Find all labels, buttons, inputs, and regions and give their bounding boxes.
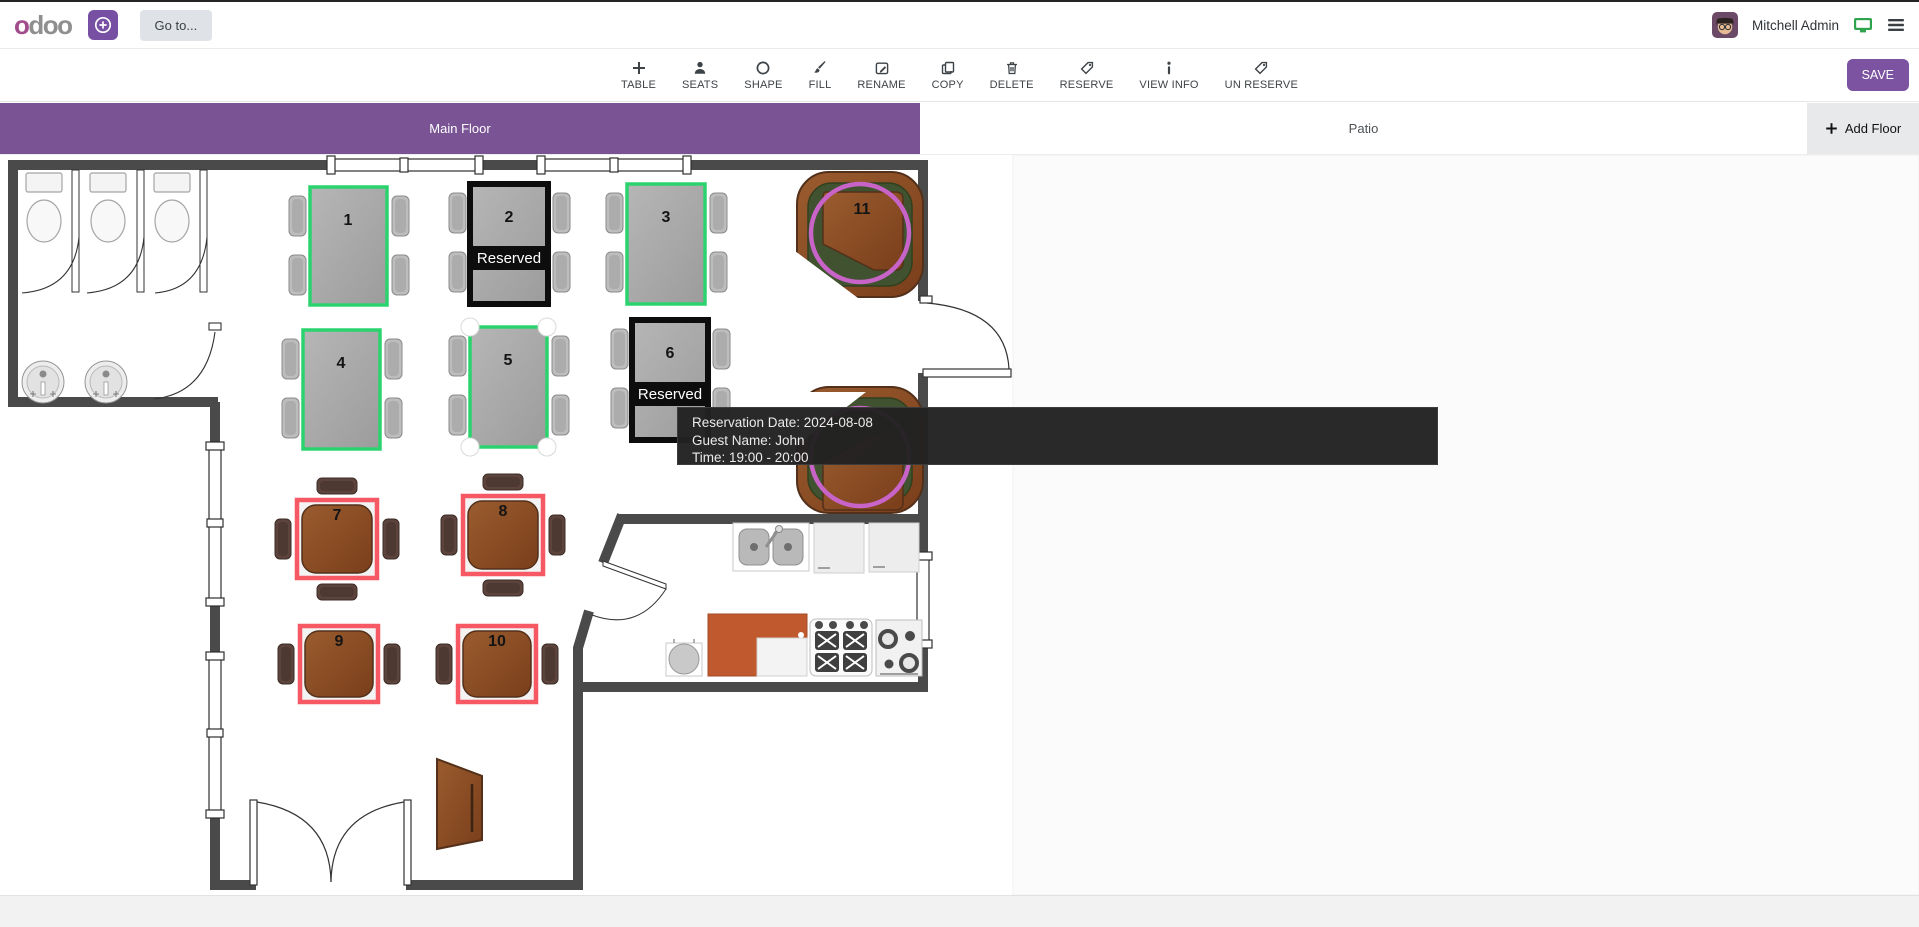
copy-button[interactable]: COPY <box>932 60 964 91</box>
chair <box>282 398 299 438</box>
table-number: 11 <box>854 201 871 218</box>
reserve-label: RESERVE <box>1060 79 1114 91</box>
chair <box>436 644 452 684</box>
chair <box>392 255 409 295</box>
hamburger-icon <box>1887 18 1905 32</box>
tag-icon <box>1253 60 1269 76</box>
table-label: TABLE <box>621 79 656 91</box>
table-number: 1 <box>344 212 353 229</box>
fill-button[interactable]: FILL <box>809 60 832 91</box>
chair <box>441 515 457 555</box>
chair <box>483 580 523 596</box>
chair <box>275 519 291 559</box>
pos-floor-editor: odoo Go to... Mitchell Admin TABLE SEATS… <box>0 0 1919 927</box>
chair <box>289 255 306 295</box>
chair <box>710 252 727 292</box>
copy-icon <box>940 60 956 76</box>
floor-plan-canvas[interactable]: 1 2 Reserved 3 4 <box>0 155 1919 895</box>
tab-main-floor-label: Main Floor <box>429 121 490 136</box>
toilets <box>26 173 190 242</box>
table-number: 10 <box>488 633 506 650</box>
chair <box>553 252 570 292</box>
customer-display-button[interactable] <box>1853 17 1873 34</box>
edit-toolbar: TABLE SEATS SHAPE FILL RENAME COPY DELET… <box>0 50 1919 102</box>
chair <box>483 474 523 490</box>
view-info-button[interactable]: VIEW INFO <box>1139 60 1198 91</box>
table-number: 5 <box>504 352 513 369</box>
kitchen-counter <box>814 523 864 573</box>
table-number: 2 <box>505 209 514 226</box>
chair <box>383 519 399 559</box>
chair <box>384 644 400 684</box>
reservation-tooltip: Reservation Date: 2024-08-08 Guest Name:… <box>677 407 1438 465</box>
electric-stove <box>876 620 922 676</box>
chair <box>282 339 299 379</box>
unreserve-label: UN RESERVE <box>1225 79 1298 91</box>
gas-stove <box>810 619 872 676</box>
apps-menu-button[interactable] <box>88 10 118 40</box>
rename-button[interactable]: RENAME <box>857 60 905 91</box>
plus-icon <box>1825 122 1838 135</box>
brush-icon <box>812 60 828 76</box>
table-number: 9 <box>335 633 344 650</box>
table-button[interactable]: TABLE <box>621 60 656 91</box>
rename-label: RENAME <box>857 79 905 91</box>
shape-label: SHAPE <box>744 79 782 91</box>
view-info-label: VIEW INFO <box>1139 79 1198 91</box>
chair <box>449 395 466 435</box>
add-floor-button[interactable]: Add Floor <box>1807 103 1919 154</box>
chair <box>278 644 294 684</box>
trash-icon <box>1004 60 1020 76</box>
table-number: 4 <box>337 355 346 372</box>
seats-label: SEATS <box>682 79 718 91</box>
avatar-image <box>1712 12 1738 38</box>
chair <box>713 329 730 369</box>
host-stand <box>437 759 482 849</box>
chair <box>392 196 409 236</box>
tooltip-date: Reservation Date: 2024-08-08 <box>692 414 1437 432</box>
table-11[interactable]: 11 <box>791 172 923 304</box>
top-navbar: odoo Go to... Mitchell Admin <box>0 2 1919 49</box>
hamburger-menu-button[interactable] <box>1887 18 1905 32</box>
table-number: 8 <box>499 503 508 520</box>
bottom-bar <box>0 895 1919 927</box>
chair <box>289 196 306 236</box>
go-to-button[interactable]: Go to... <box>140 10 213 41</box>
chair <box>449 252 466 292</box>
chair <box>449 193 466 233</box>
chair <box>552 336 569 376</box>
chair <box>449 336 466 376</box>
save-button[interactable]: SAVE <box>1847 59 1909 91</box>
chair <box>385 398 402 438</box>
delete-label: DELETE <box>990 79 1034 91</box>
table-number: 7 <box>333 507 342 524</box>
chair <box>611 329 628 369</box>
odoo-logo[interactable]: odoo <box>14 12 72 38</box>
seats-button[interactable]: SEATS <box>682 60 718 91</box>
user-name[interactable]: Mitchell Admin <box>1752 18 1839 33</box>
tooltip-guest: Guest Name: John <box>692 432 1437 450</box>
chair <box>606 193 623 233</box>
tooltip-time: Time: 19:00 - 20:00 <box>692 449 1437 467</box>
chair <box>385 339 402 379</box>
info-icon <box>1161 60 1177 76</box>
chair <box>710 193 727 233</box>
chair <box>606 252 623 292</box>
reserve-button[interactable]: RESERVE <box>1060 60 1114 91</box>
copy-label: COPY <box>932 79 964 91</box>
chair <box>553 193 570 233</box>
circle-icon <box>755 60 771 76</box>
unreserve-button[interactable]: UN RESERVE <box>1225 60 1298 91</box>
chair <box>542 644 558 684</box>
person-icon <box>692 60 708 76</box>
table-number: 6 <box>666 345 675 362</box>
add-floor-label: Add Floor <box>1845 121 1901 136</box>
reserved-label: Reserved <box>477 250 541 267</box>
shape-button[interactable]: SHAPE <box>744 60 782 91</box>
tab-patio-label: Patio <box>1349 121 1379 136</box>
tab-patio[interactable]: Patio <box>920 103 1807 154</box>
chair <box>552 395 569 435</box>
canvas-right-area <box>1013 155 1919 895</box>
fill-label: FILL <box>809 79 832 91</box>
edit-icon <box>874 60 890 76</box>
monitor-icon <box>1853 17 1873 34</box>
plus-circle-icon <box>93 15 113 35</box>
floor-tabs: Main Floor Patio Add Floor <box>0 103 1919 155</box>
chair <box>611 388 628 428</box>
table-number: 3 <box>662 209 671 226</box>
plus-icon <box>631 60 647 76</box>
reserved-label: Reserved <box>638 386 702 403</box>
tab-main-floor[interactable]: Main Floor <box>0 103 920 154</box>
kitchen-counter <box>869 523 919 572</box>
chair <box>317 478 357 494</box>
chair <box>317 584 357 600</box>
delete-button[interactable]: DELETE <box>990 60 1034 91</box>
user-avatar[interactable] <box>1712 12 1738 38</box>
tag-icon <box>1079 60 1095 76</box>
chair <box>549 515 565 555</box>
